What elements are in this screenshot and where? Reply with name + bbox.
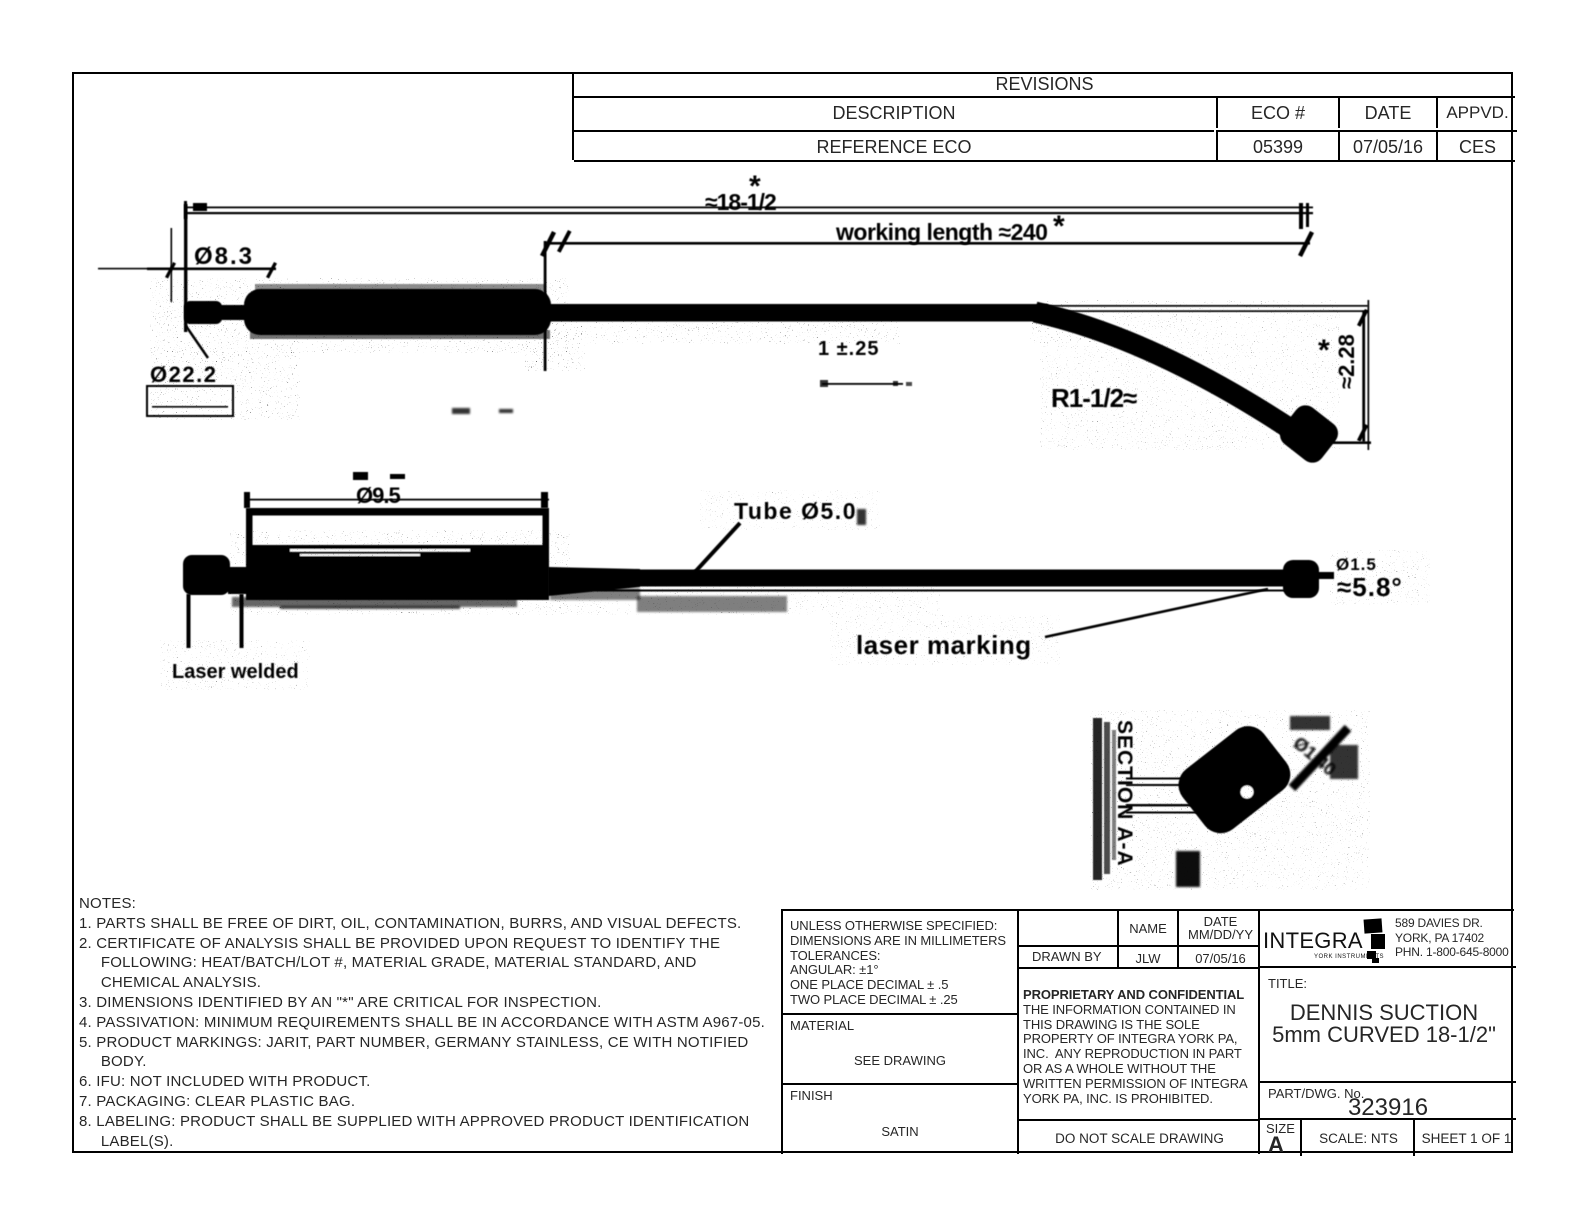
svg-text:*: * [1053,210,1065,243]
svg-text:≈18-1/2: ≈18-1/2 [705,189,776,215]
svg-text:working length ≈240: working length ≈240 [835,219,1047,245]
svg-text:Ø9.5: Ø9.5 [356,483,400,508]
svg-text:Ø8.3: Ø8.3 [194,243,254,270]
svg-text:*: * [749,170,761,203]
